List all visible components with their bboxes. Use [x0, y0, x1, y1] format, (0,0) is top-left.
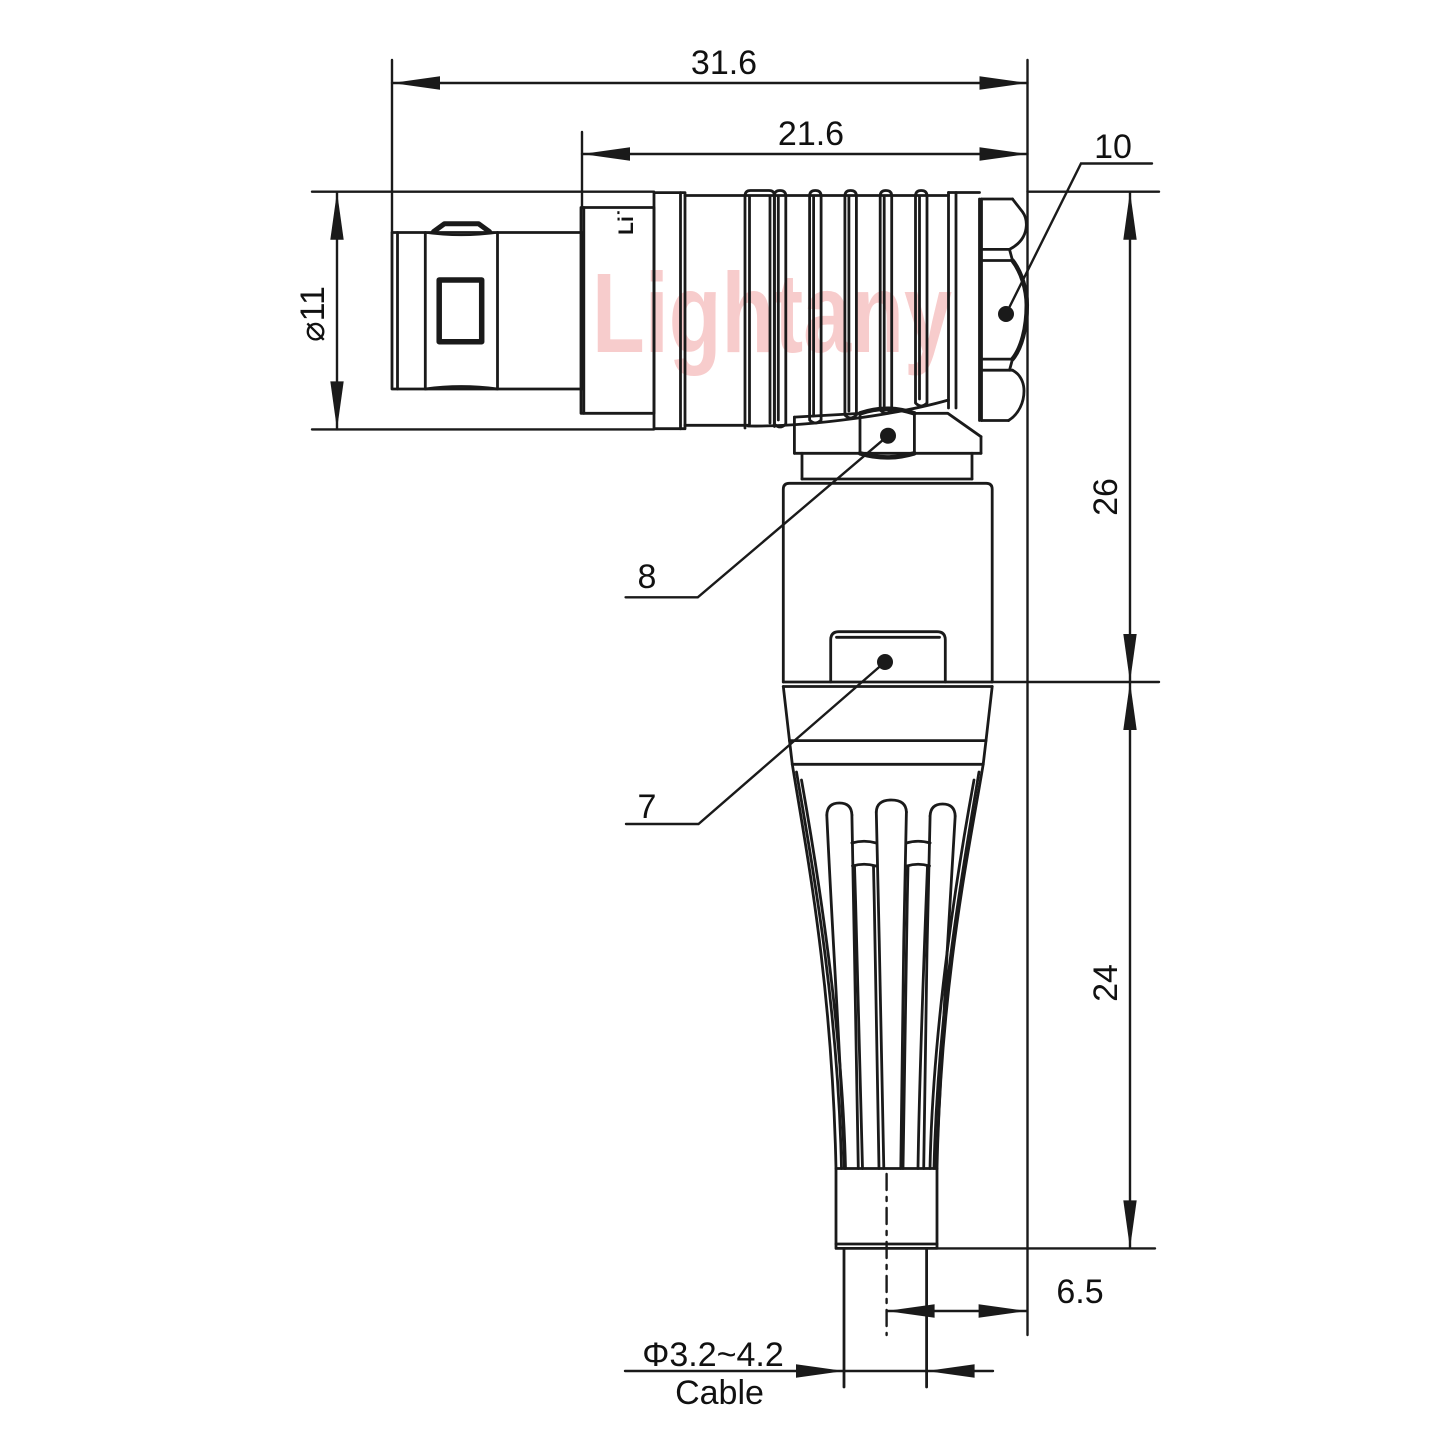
svg-text:6.5: 6.5 [1056, 1273, 1103, 1311]
svg-text:Li˙: Li˙ [615, 209, 638, 235]
svg-text:24: 24 [1087, 964, 1125, 1002]
svg-text:21.6: 21.6 [778, 115, 844, 153]
svg-text:Cable: Cable [675, 1374, 764, 1412]
svg-text:10: 10 [1094, 128, 1132, 166]
svg-text:Lightany: Lightany [592, 250, 952, 376]
svg-text:Φ3.2~4.2: Φ3.2~4.2 [642, 1336, 784, 1374]
svg-text:31.6: 31.6 [691, 44, 757, 82]
svg-text:7: 7 [638, 788, 657, 826]
svg-text:8: 8 [638, 558, 657, 596]
svg-text:26: 26 [1087, 478, 1125, 516]
svg-text:⌀11: ⌀11 [294, 286, 332, 342]
